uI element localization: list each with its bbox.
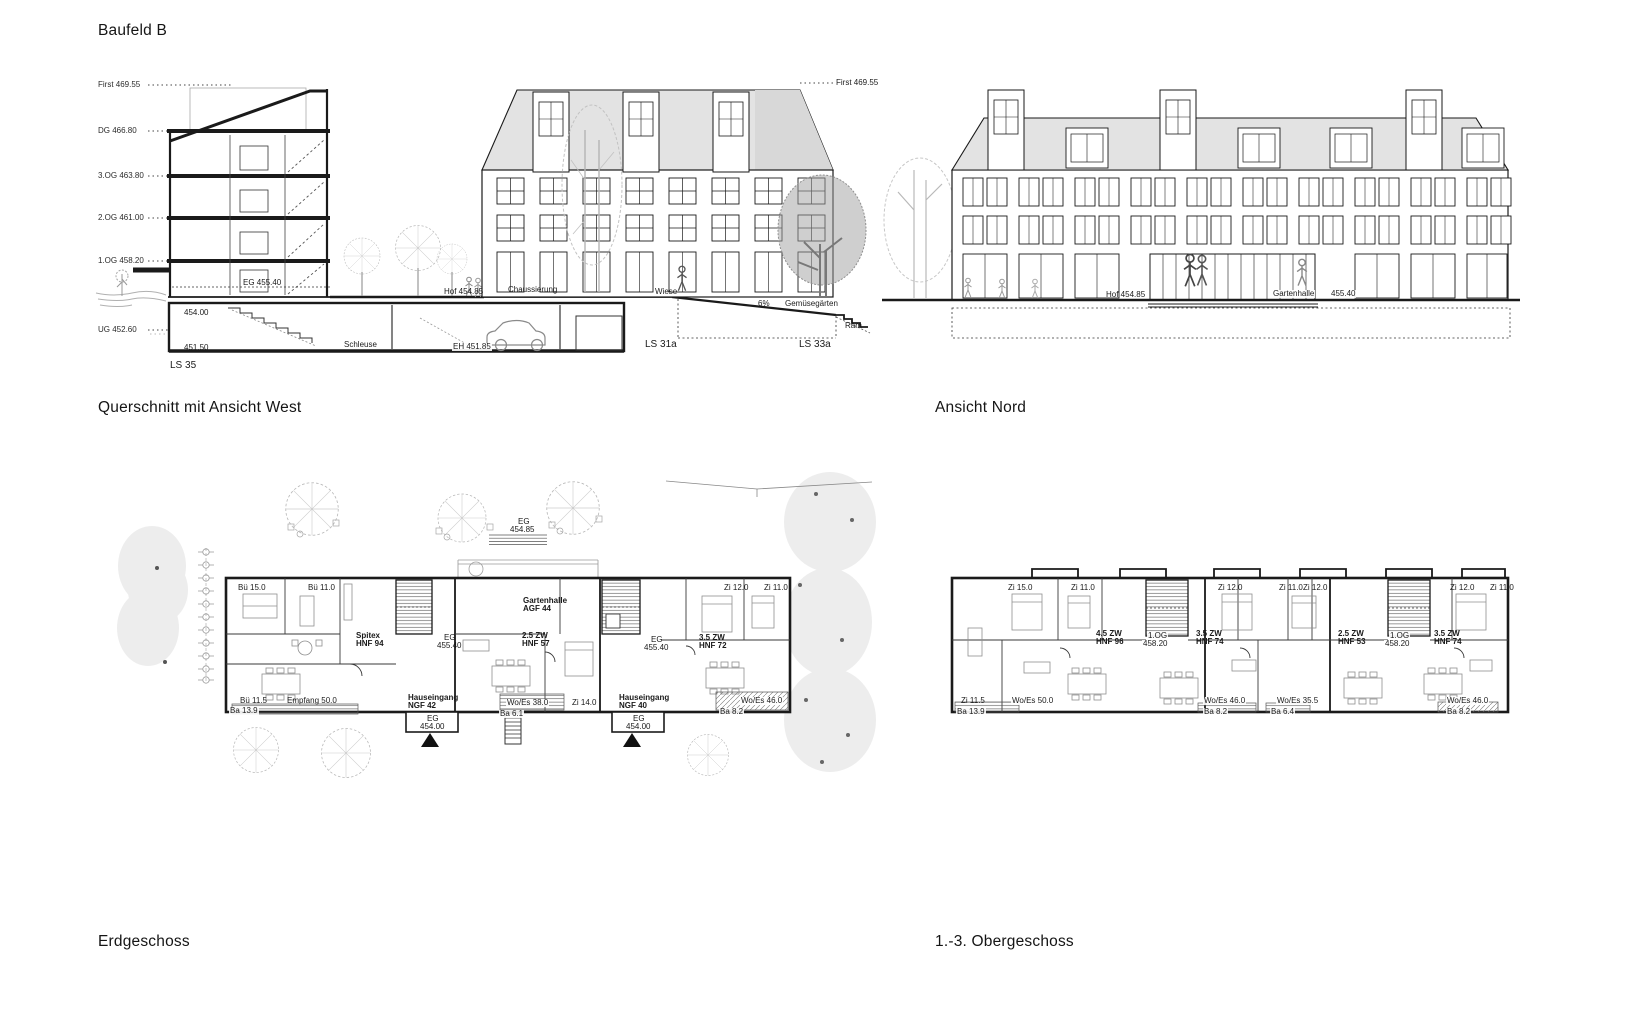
caption-north-elevation: Ansicht Nord: [935, 399, 1026, 417]
sheet-title: Baufeld B: [98, 22, 167, 40]
eg-floor-plan: [117, 472, 876, 778]
caption-section-west: Querschnitt mit Ansicht West: [98, 399, 301, 417]
north-elevation-drawing: [882, 90, 1520, 338]
linework-svg: [0, 0, 1640, 1020]
caption-upper-floors: 1.-3. Obergeschoss: [935, 933, 1074, 951]
tree-glyph: [884, 158, 956, 298]
drawing-sheet: Baufeld B Querschnitt mit Ansicht West A…: [0, 0, 1640, 1020]
caption-ground-floor: Erdgeschoss: [98, 933, 190, 951]
section-west-drawing: [96, 83, 870, 351]
og-floor-plan: [952, 569, 1508, 712]
